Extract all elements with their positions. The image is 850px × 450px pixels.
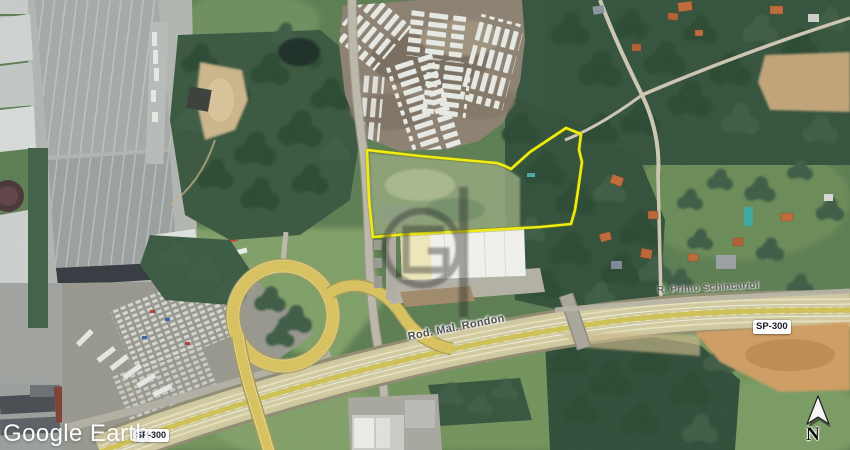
compass-north-label: N bbox=[806, 424, 820, 446]
satellite-imagery bbox=[0, 0, 850, 450]
satellite-map[interactable]: Rod. Mal. Rondon R. Primo Schincariol SP… bbox=[0, 0, 850, 450]
route-badge-sp300-right: SP-300 bbox=[753, 320, 791, 334]
google-earth-watermark: Google Earth bbox=[3, 420, 149, 448]
